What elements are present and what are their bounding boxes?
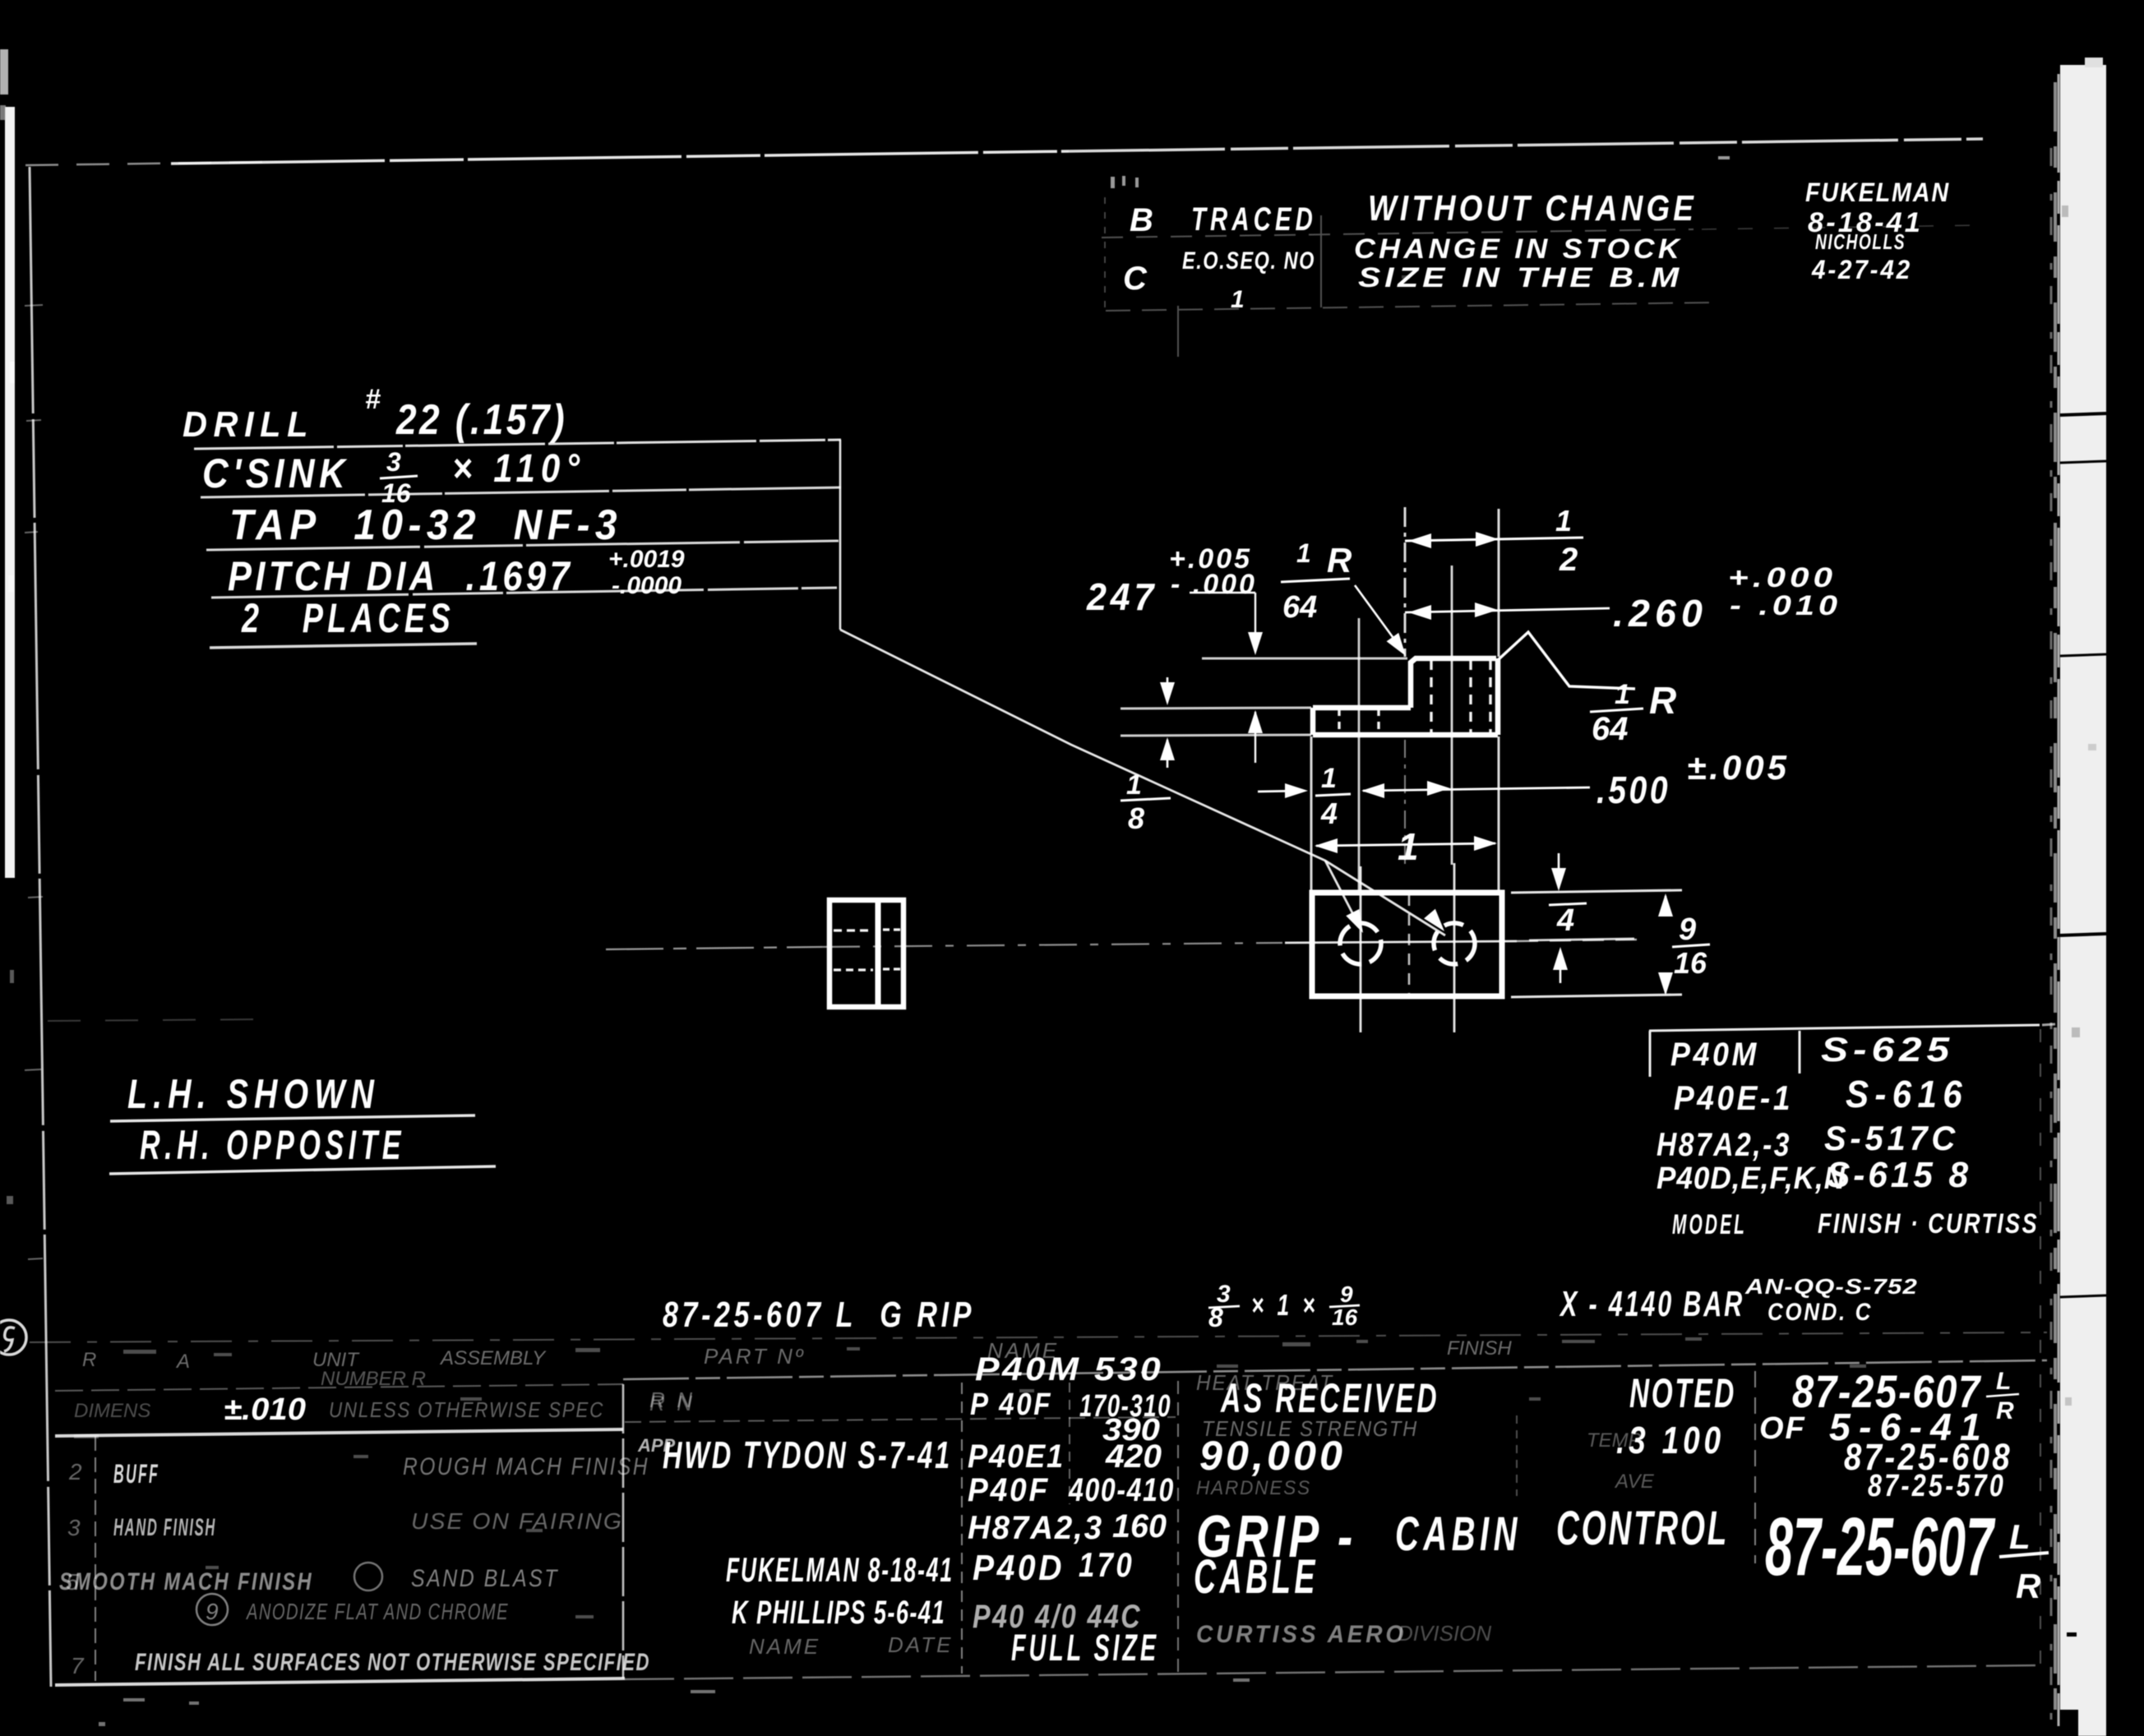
- svg-text:S-625: S-625: [1821, 1030, 1954, 1069]
- svg-text:C: C: [1123, 261, 1148, 297]
- svg-text:16: 16: [1332, 1304, 1358, 1330]
- svg-text:8: 8: [1208, 1303, 1223, 1332]
- svg-text:9: 9: [1679, 912, 1696, 947]
- svg-text:.260: .260: [1613, 592, 1707, 635]
- svg-text:87-25-570: 87-25-570: [1868, 1469, 2006, 1503]
- svg-text:ASSEMBLY: ASSEMBLY: [439, 1347, 547, 1369]
- svg-text:NUMBER R: NUMBER R: [321, 1368, 426, 1390]
- svg-text:±.010: ±.010: [224, 1392, 306, 1427]
- svg-text:ANODIZE FLAT AND CHROME: ANODIZE FLAT AND CHROME: [246, 1599, 509, 1624]
- svg-text:FINISH · CURTISS: FINISH · CURTISS: [1818, 1208, 2039, 1240]
- svg-text:SMOOTH MACH FINISH: SMOOTH MACH FINISH: [59, 1568, 313, 1595]
- svg-text:4-27-42: 4-27-42: [1811, 255, 1912, 284]
- svg-text:CABLE: CABLE: [1194, 1550, 1319, 1604]
- svg-text:UNLESS OTHERWISE SPEC: UNLESS OTHERWISE SPEC: [329, 1397, 604, 1422]
- svg-text:.500: .500: [1596, 769, 1670, 811]
- svg-text:1: 1: [1555, 504, 1572, 538]
- svg-text:FINISH: FINISH: [1447, 1337, 1512, 1360]
- svg-text:WITHOUT CHANGE: WITHOUT CHANGE: [1368, 188, 1697, 229]
- svg-text:L: L: [2009, 1517, 2031, 1556]
- svg-text:AS RECEIVED: AS RECEIVED: [1220, 1375, 1439, 1421]
- svg-text:R: R: [2016, 1567, 2041, 1605]
- svg-text:OF: OF: [1759, 1411, 1806, 1446]
- svg-text:1: 1: [1231, 286, 1245, 313]
- svg-text:FINISH ALL SURFACES NOT OTHERW: FINISH ALL SURFACES NOT OTHERWISE SPECIF…: [135, 1649, 650, 1676]
- svg-text:HAND FINISH: HAND FINISH: [113, 1514, 216, 1541]
- svg-text:X - 4140 BAR: X - 4140 BAR: [1559, 1284, 1744, 1324]
- svg-text:160: 160: [1112, 1508, 1167, 1544]
- svg-text:.3 100: .3 100: [1616, 1419, 1725, 1461]
- svg-text:P40D: P40D: [973, 1548, 1065, 1588]
- svg-text:P40M 530: P40M 530: [975, 1351, 1163, 1387]
- svg-text:SAND BLAST: SAND BLAST: [411, 1565, 559, 1592]
- svg-text:HWD TYDON S-7-41: HWD TYDON S-7-41: [663, 1434, 952, 1476]
- svg-text:DIVISION: DIVISION: [1398, 1621, 1491, 1646]
- svg-text:±.005: ±.005: [1687, 748, 1790, 787]
- svg-text:S-517C: S-517C: [1824, 1119, 1959, 1157]
- svg-text:× 110°: × 110°: [452, 447, 585, 491]
- svg-text:1: 1: [1615, 679, 1630, 710]
- svg-text:P 40F: P 40F: [970, 1387, 1052, 1422]
- svg-text:NAME: NAME: [749, 1634, 820, 1659]
- svg-text:TRACED: TRACED: [1191, 201, 1317, 238]
- svg-text:1: 1: [1296, 538, 1311, 568]
- svg-text:AVE: AVE: [1614, 1471, 1655, 1493]
- svg-text:4: 4: [1320, 796, 1338, 830]
- svg-text:NOTED: NOTED: [1629, 1370, 1736, 1416]
- svg-text:DRILL: DRILL: [183, 404, 314, 445]
- svg-text:400-410: 400-410: [1068, 1472, 1175, 1508]
- svg-text:R.H. OPPOSITE: R.H. OPPOSITE: [140, 1122, 405, 1168]
- svg-text:CONTROL: CONTROL: [1556, 1502, 1729, 1555]
- svg-text:S-615 8: S-615 8: [1827, 1155, 1971, 1195]
- svg-text:2: 2: [68, 1459, 82, 1484]
- svg-text:MODEL: MODEL: [1672, 1209, 1747, 1240]
- svg-text:PART Nº: PART Nº: [704, 1344, 805, 1369]
- svg-text:64: 64: [1592, 711, 1629, 747]
- svg-text:L.H. SHOWN: L.H. SHOWN: [127, 1071, 380, 1117]
- svg-text:R: R: [1327, 541, 1352, 579]
- svg-text:8: 8: [1128, 801, 1144, 835]
- svg-text:22 (.157): 22 (.157): [395, 396, 567, 444]
- svg-text:DIMENS: DIMENS: [74, 1400, 150, 1422]
- svg-text:USE ON FAIRING: USE ON FAIRING: [411, 1508, 623, 1534]
- svg-text:R: R: [82, 1349, 96, 1371]
- svg-text:3: 3: [386, 447, 401, 477]
- svg-text:247: 247: [1086, 575, 1157, 618]
- svg-text:FUKELMAN 8-18-41: FUKELMAN 8-18-41: [726, 1550, 954, 1589]
- svg-text:FUKELMAN: FUKELMAN: [1805, 178, 1950, 207]
- svg-text:1: 1: [1321, 763, 1337, 794]
- svg-text:R N: R N: [649, 1387, 692, 1412]
- svg-text:+.0019: +.0019: [608, 546, 685, 573]
- svg-text:E.O.SEQ. NO: E.O.SEQ. NO: [1182, 247, 1315, 275]
- svg-text:1: 1: [1398, 825, 1419, 868]
- svg-text:87-25-607: 87-25-607: [1765, 1501, 1996, 1593]
- svg-text:2: 2: [1559, 542, 1578, 578]
- svg-text:9: 9: [206, 1599, 219, 1624]
- svg-text:P40E1: P40E1: [968, 1438, 1065, 1475]
- svg-text:H87A2,3: H87A2,3: [968, 1510, 1103, 1546]
- svg-text:K PHILLIPS 5-6-41: K PHILLIPS 5-6-41: [732, 1595, 945, 1631]
- svg-text:L: L: [1996, 1368, 2011, 1395]
- svg-text:-.0000: -.0000: [612, 572, 682, 599]
- svg-text:7: 7: [71, 1653, 85, 1678]
- svg-text:S-616: S-616: [1846, 1073, 1968, 1115]
- svg-text:P40D,E,F,K,N: P40D,E,F,K,N: [1657, 1161, 1846, 1196]
- svg-text:1: 1: [1126, 769, 1142, 801]
- svg-text:C'SINK: C'SINK: [202, 450, 349, 496]
- svg-text:TAP 10-32 NF-3: TAP 10-32 NF-3: [229, 501, 622, 549]
- svg-text:ROUGH MACH FINISH: ROUGH MACH FINISH: [403, 1453, 649, 1480]
- svg-text:16: 16: [1674, 946, 1707, 980]
- svg-text:CHANGE IN STOCK: CHANGE IN STOCK: [1354, 233, 1683, 265]
- svg-text:+.000: +.000: [1728, 562, 1837, 593]
- svg-text:FULL SIZE: FULL SIZE: [1011, 1627, 1159, 1669]
- svg-text:B: B: [1130, 202, 1153, 238]
- svg-text:2 PLACES: 2 PLACES: [241, 595, 455, 641]
- svg-text:HARDNESS: HARDNESS: [1196, 1477, 1311, 1499]
- svg-text:NICHOLLS: NICHOLLS: [1815, 229, 1906, 254]
- svg-text:#: #: [365, 384, 381, 415]
- svg-text:P40E-1: P40E-1: [1674, 1078, 1793, 1117]
- svg-text:4: 4: [1556, 903, 1574, 938]
- svg-text:3: 3: [67, 1515, 81, 1540]
- svg-text:BUFF: BUFF: [113, 1459, 159, 1489]
- svg-text:90,000: 90,000: [1199, 1433, 1346, 1479]
- svg-text:170: 170: [1079, 1545, 1134, 1584]
- svg-text:P40F: P40F: [968, 1472, 1050, 1508]
- svg-text:P40M: P40M: [1670, 1037, 1759, 1073]
- svg-text:9: 9: [1340, 1281, 1353, 1307]
- svg-text:CABIN: CABIN: [1395, 1507, 1522, 1561]
- svg-text:COND. C: COND. C: [1767, 1299, 1873, 1326]
- svg-text:× 1 ×: × 1 ×: [1251, 1288, 1319, 1322]
- svg-text:AN-QQ-S-752: AN-QQ-S-752: [1744, 1274, 1918, 1299]
- svg-text:DATE: DATE: [888, 1632, 953, 1657]
- svg-text:420: 420: [1105, 1438, 1162, 1475]
- svg-text:R: R: [1996, 1397, 2014, 1424]
- svg-text:- .010: - .010: [1730, 590, 1841, 621]
- svg-text:- .000: - .000: [1171, 569, 1257, 600]
- svg-text:H87A2,-3: H87A2,-3: [1657, 1127, 1791, 1163]
- svg-text:64: 64: [1282, 590, 1317, 625]
- svg-text:A: A: [175, 1350, 190, 1373]
- svg-text:CURTISS AERO: CURTISS AERO: [1196, 1621, 1407, 1648]
- svg-text:R: R: [1649, 679, 1676, 722]
- svg-text:87-25-607 L G RIP: 87-25-607 L G RIP: [663, 1295, 975, 1335]
